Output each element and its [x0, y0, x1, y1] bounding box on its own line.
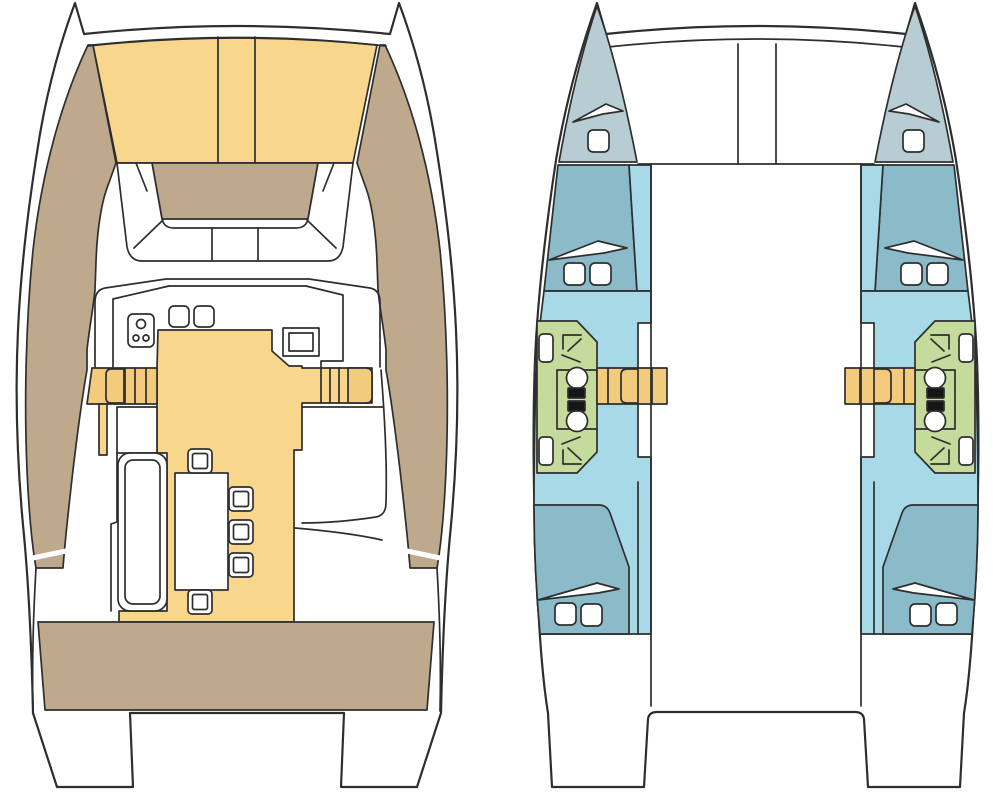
foredeck-sunpad — [93, 37, 377, 163]
stove-icon — [128, 314, 154, 347]
cabin-deck-plan — [534, 3, 979, 787]
forward-cockpit — [117, 163, 353, 261]
toilet-icon — [567, 368, 588, 389]
aft-deck — [38, 622, 434, 710]
head-bathroom — [537, 321, 597, 473]
cabinet — [539, 334, 553, 362]
cockpit-floor — [152, 163, 318, 219]
toilet-tank — [568, 388, 585, 398]
hull-steps — [597, 368, 667, 404]
floorplan-canvas — [0, 0, 993, 798]
catamaran-floorplan-page — [0, 0, 993, 798]
oven-icon — [283, 328, 319, 356]
saloon-sofa — [118, 453, 167, 611]
galley-cabinet — [117, 407, 157, 453]
dining-table — [175, 473, 228, 590]
main-deck-plan — [17, 3, 458, 787]
forward-cabin — [544, 165, 637, 291]
